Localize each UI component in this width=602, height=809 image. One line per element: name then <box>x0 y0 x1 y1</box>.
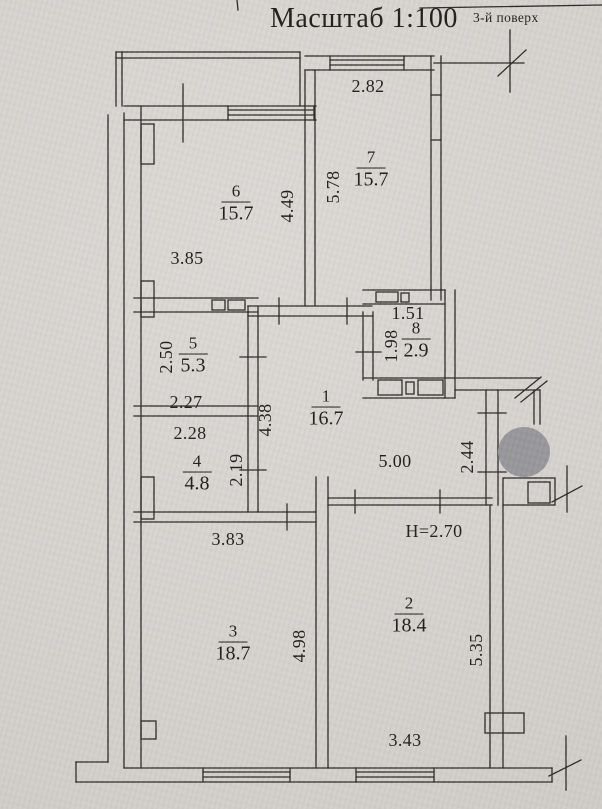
room-number: 7 <box>357 149 386 169</box>
dim-room4-depth-right: 2.19 <box>227 453 245 486</box>
floorplan-scan-page: Масштаб 1:100 3-й поверх <box>0 0 602 809</box>
room-area: 18.4 <box>392 615 427 638</box>
room-label-2: 2 18.4 <box>392 595 427 638</box>
dim-room3-depth-right: 4.98 <box>290 629 308 662</box>
room-area: 18.7 <box>216 643 251 666</box>
dim-room2-depth-right: 5.35 <box>467 633 485 666</box>
dim-hall-width: 5.00 <box>378 452 411 470</box>
room-number: 2 <box>395 595 424 615</box>
room-label-5: 5 5.3 <box>179 335 208 378</box>
dim-room6-depth-right: 4.49 <box>278 189 296 222</box>
room-label-4: 4 4.8 <box>183 453 212 496</box>
room-label-1: 1 16.7 <box>309 388 344 431</box>
room-area: 16.7 <box>309 408 344 431</box>
dim-room3-width-top: 3.83 <box>211 530 244 548</box>
dim-room7-width-top: 2.82 <box>351 77 384 95</box>
dim-room2-width-bottom: 3.43 <box>388 731 421 749</box>
balcony-outline <box>116 52 300 106</box>
dim-room8-width-top: 1.51 <box>391 304 424 322</box>
dim-room4-width-top: 2.28 <box>173 424 206 442</box>
room-area: 15.7 <box>354 169 389 192</box>
dim-room8-depth-left: 1.98 <box>382 329 400 362</box>
room-number: 5 <box>179 335 208 355</box>
room-area: 15.7 <box>219 203 254 226</box>
wall-pilasters <box>141 124 156 739</box>
floorplan-drawing <box>0 0 602 809</box>
reference-arrows <box>434 30 582 790</box>
room-label-8: 8 2.9 <box>402 320 431 363</box>
header-rule <box>237 0 602 10</box>
room-number: 3 <box>219 623 248 643</box>
dim-room7-depth-left: 5.78 <box>324 170 342 203</box>
room-area: 4.8 <box>185 473 210 496</box>
room-label-6: 6 15.7 <box>219 183 254 226</box>
dim-hall-depth-left: 4.38 <box>256 403 274 436</box>
exterior-walls <box>76 106 552 782</box>
room-label-7: 7 15.7 <box>354 149 389 192</box>
dim-room5-depth-left: 2.50 <box>157 340 175 373</box>
dim-room5-width-bottom: 2.27 <box>169 393 202 411</box>
dim-entry-depth-right: 2.44 <box>458 440 476 473</box>
room-number: 1 <box>312 388 341 408</box>
room-number: 6 <box>222 183 251 203</box>
room-area: 2.9 <box>404 340 429 363</box>
room-area: 5.3 <box>181 355 206 378</box>
ceiling-height-note: Н=2.70 <box>405 522 462 540</box>
redaction-blob <box>498 427 550 477</box>
dim-room6-width-bottom: 3.85 <box>170 249 203 267</box>
room-number: 4 <box>183 453 212 473</box>
room-label-3: 3 18.7 <box>216 623 251 666</box>
